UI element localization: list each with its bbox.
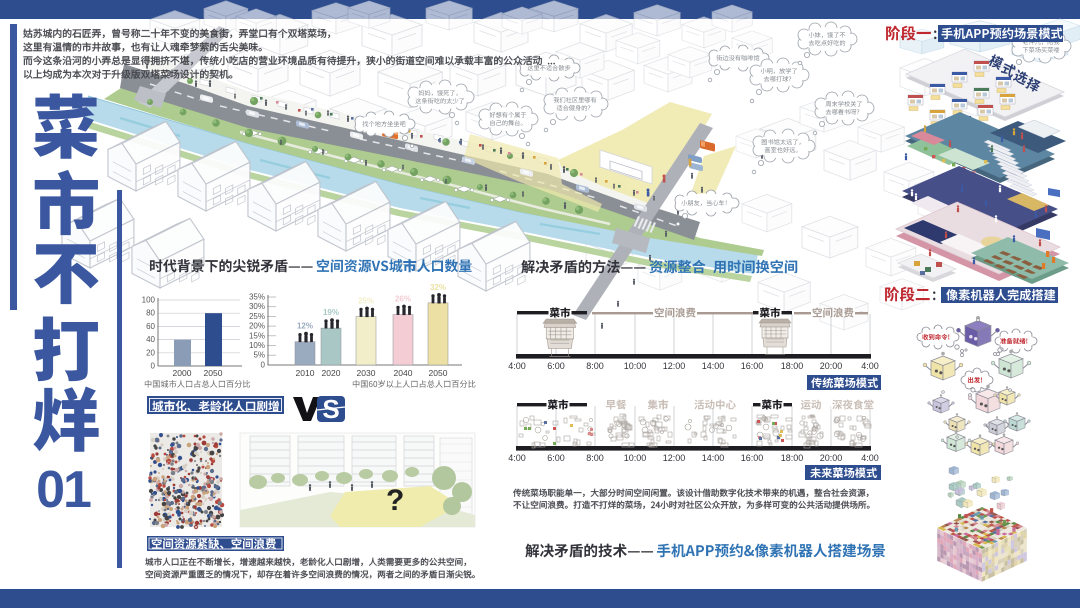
svg-text:14:00: 14:00 (702, 361, 725, 371)
svg-text:16:00: 16:00 (741, 361, 764, 371)
svg-text:100: 100 (142, 296, 156, 305)
svg-text:6:00: 6:00 (547, 453, 565, 463)
svg-text:4:00: 4:00 (861, 453, 879, 463)
svg-text:6:00: 6:00 (547, 361, 565, 371)
svg-text:10:00: 10:00 (624, 361, 647, 371)
svg-text:2020: 2020 (322, 368, 341, 378)
svg-text:0: 0 (151, 362, 156, 371)
svg-text:2010: 2010 (296, 368, 315, 378)
svg-text:2000: 2000 (173, 368, 192, 378)
svg-text:12:00: 12:00 (663, 361, 686, 371)
svg-text:20%: 20% (249, 322, 265, 331)
svg-text:01: 01 (36, 461, 91, 519)
svg-text:25%: 25% (249, 312, 265, 321)
svg-text:5%: 5% (253, 351, 265, 360)
svg-text:35%: 35% (249, 293, 265, 302)
svg-text:20:00: 20:00 (820, 361, 843, 371)
svg-text:80: 80 (146, 309, 155, 318)
svg-text:0: 0 (261, 360, 266, 369)
svg-text:2050: 2050 (204, 368, 223, 378)
svg-text:4:00: 4:00 (861, 361, 879, 371)
svg-text:16:00: 16:00 (741, 453, 764, 463)
svg-text:25%: 25% (358, 297, 374, 306)
svg-text:2030: 2030 (357, 368, 376, 378)
svg-text:40: 40 (146, 335, 155, 344)
svg-text:12:00: 12:00 (663, 453, 686, 463)
svg-text:4:00: 4:00 (508, 453, 526, 463)
svg-text:60: 60 (146, 322, 155, 331)
svg-text:?: ? (386, 484, 404, 517)
svg-text:14:00: 14:00 (702, 453, 725, 463)
svg-text:12%: 12% (297, 322, 313, 331)
svg-text:2040: 2040 (394, 368, 413, 378)
svg-text:2050: 2050 (429, 368, 448, 378)
svg-text:19%: 19% (323, 308, 339, 317)
svg-text:20:00: 20:00 (820, 453, 843, 463)
svg-text:8:00: 8:00 (586, 453, 604, 463)
svg-text:4:00: 4:00 (508, 361, 526, 371)
svg-text:18:00: 18:00 (781, 453, 804, 463)
svg-text:15%: 15% (249, 331, 265, 340)
svg-text:10%: 10% (249, 341, 265, 350)
svg-text:20: 20 (146, 348, 155, 357)
svg-text:26%: 26% (395, 295, 411, 304)
svg-text:8:00: 8:00 (586, 361, 604, 371)
svg-text:10:00: 10:00 (624, 453, 647, 463)
svg-text:18:00: 18:00 (781, 361, 804, 371)
svg-text:30%: 30% (249, 302, 265, 311)
svg-text:32%: 32% (430, 283, 446, 292)
